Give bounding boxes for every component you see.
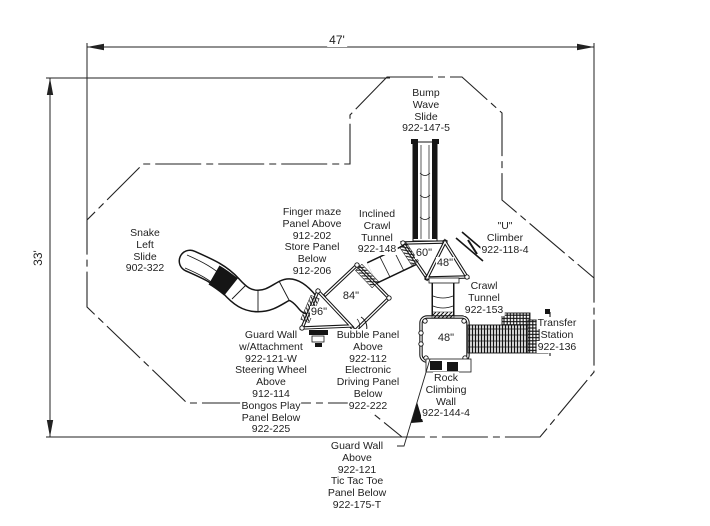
arrowhead-top (47, 78, 53, 95)
deck-48-triangle-label: 48" (436, 257, 454, 269)
arrowhead-bottom (47, 420, 53, 437)
bump-wave-slide-label: BumpWaveSlide922-147-5 (401, 88, 451, 135)
height-dimension-label: 33' (31, 248, 45, 268)
arrowhead-right (577, 44, 594, 50)
deck-84-label: 84" (342, 290, 360, 302)
crawl-tunnel-label: CrawlTunnel922-153 (464, 281, 505, 316)
deck-48-square-label: 48" (437, 332, 455, 344)
width-dimension-label: 47' (327, 33, 347, 47)
inclined-crawl-tunnel-label: InclinedCrawlTunnel922-148 (357, 209, 398, 256)
transfer-station-label: TransferStation922-136 (537, 318, 578, 353)
guard-wall-attachment-label: Guard Wallw/Attachment922-121-WSteering … (234, 330, 308, 436)
arrowhead-left (87, 44, 104, 50)
finger-maze-panel-label: Finger mazePanel Above912-202Store Panel… (282, 207, 343, 278)
u-climber-label: "U"Climber922-118-4 (480, 221, 529, 256)
playground-plan-drawing: 47' 33' SnakeLeftSlide902-322Finger maze… (0, 0, 710, 526)
slide-dark-band (214, 275, 231, 287)
guard-wall-above-label: Guard WallAbove922-121Tic Tac ToePanel B… (327, 441, 387, 512)
steering-wheel-attachment (309, 330, 328, 347)
tunnel-connection-hatch-48sq (432, 312, 454, 318)
bump-wave-slide-drawing (411, 139, 439, 241)
bubble-panel-label: Bubble PanelAbove922-112ElectronicDrivin… (336, 330, 400, 413)
tunnel-connector (429, 278, 459, 283)
rock-climbing-wall-label: RockClimbingWall922-144-4 (421, 373, 471, 420)
deck-60-label: 60" (415, 247, 433, 259)
deck-96-label: 96" (310, 306, 328, 318)
vertical-crawl-tunnel-drawing (433, 283, 453, 316)
snake-left-slide-label: SnakeLeftSlide902-322 (125, 228, 166, 275)
